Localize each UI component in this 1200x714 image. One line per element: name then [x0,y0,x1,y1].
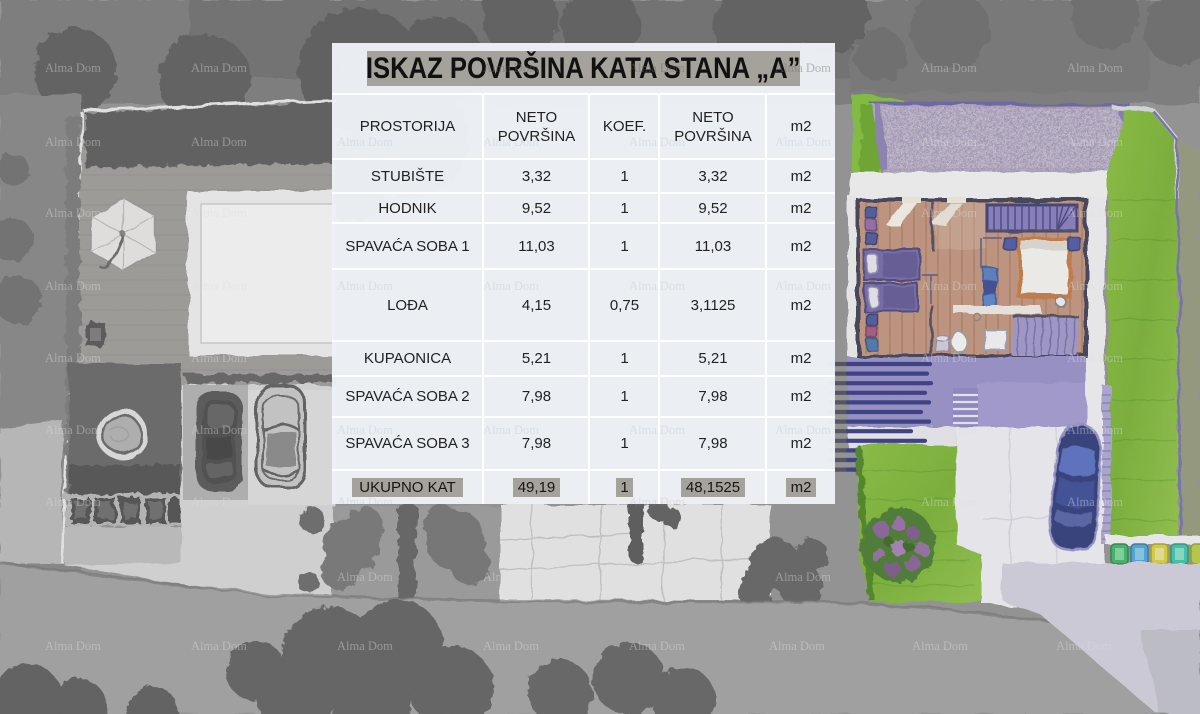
svg-text:Alma Dom: Alma Dom [1067,135,1123,149]
svg-text:Alma Dom: Alma Dom [191,135,247,149]
svg-text:Alma Dom: Alma Dom [1056,639,1112,653]
svg-text:Alma Dom: Alma Dom [1067,495,1123,509]
svg-text:Alma Dom: Alma Dom [1067,61,1123,75]
svg-text:Alma Dom: Alma Dom [483,570,539,584]
svg-text:Alma Dom: Alma Dom [912,639,968,653]
svg-text:Alma Dom: Alma Dom [1067,351,1123,365]
svg-text:Alma Dom: Alma Dom [921,423,977,437]
svg-text:Alma Dom: Alma Dom [191,639,247,653]
svg-text:Alma Dom: Alma Dom [769,639,825,653]
svg-text:Alma Dom: Alma Dom [45,351,101,365]
svg-text:Alma Dom: Alma Dom [921,61,977,75]
svg-text:Alma Dom: Alma Dom [45,206,101,220]
svg-text:Alma Dom: Alma Dom [45,61,101,75]
svg-text:Alma Dom: Alma Dom [191,61,247,75]
svg-text:Alma Dom: Alma Dom [191,206,247,220]
svg-text:Alma Dom: Alma Dom [337,639,393,653]
svg-text:Alma Dom: Alma Dom [191,279,247,293]
svg-text:Alma Dom: Alma Dom [921,351,977,365]
svg-text:Alma Dom: Alma Dom [775,570,831,584]
svg-text:Alma Dom: Alma Dom [921,206,977,220]
svg-text:Alma Dom: Alma Dom [45,639,101,653]
svg-text:Alma Dom: Alma Dom [1067,423,1123,437]
svg-text:Alma Dom: Alma Dom [45,423,101,437]
svg-text:Alma Dom: Alma Dom [1067,279,1123,293]
svg-text:Alma Dom: Alma Dom [337,570,393,584]
svg-text:Alma Dom: Alma Dom [45,135,101,149]
svg-text:Alma Dom: Alma Dom [921,279,977,293]
svg-text:Alma Dom: Alma Dom [191,423,247,437]
svg-text:Alma Dom: Alma Dom [921,495,977,509]
svg-text:Alma Dom: Alma Dom [629,639,685,653]
svg-text:Alma Dom: Alma Dom [45,495,101,509]
svg-text:Alma Dom: Alma Dom [191,351,247,365]
svg-text:Alma Dom: Alma Dom [45,279,101,293]
svg-text:Alma Dom: Alma Dom [483,639,539,653]
svg-text:Alma Dom: Alma Dom [921,135,977,149]
svg-text:Alma Dom: Alma Dom [191,495,247,509]
svg-text:Alma Dom: Alma Dom [1067,206,1123,220]
